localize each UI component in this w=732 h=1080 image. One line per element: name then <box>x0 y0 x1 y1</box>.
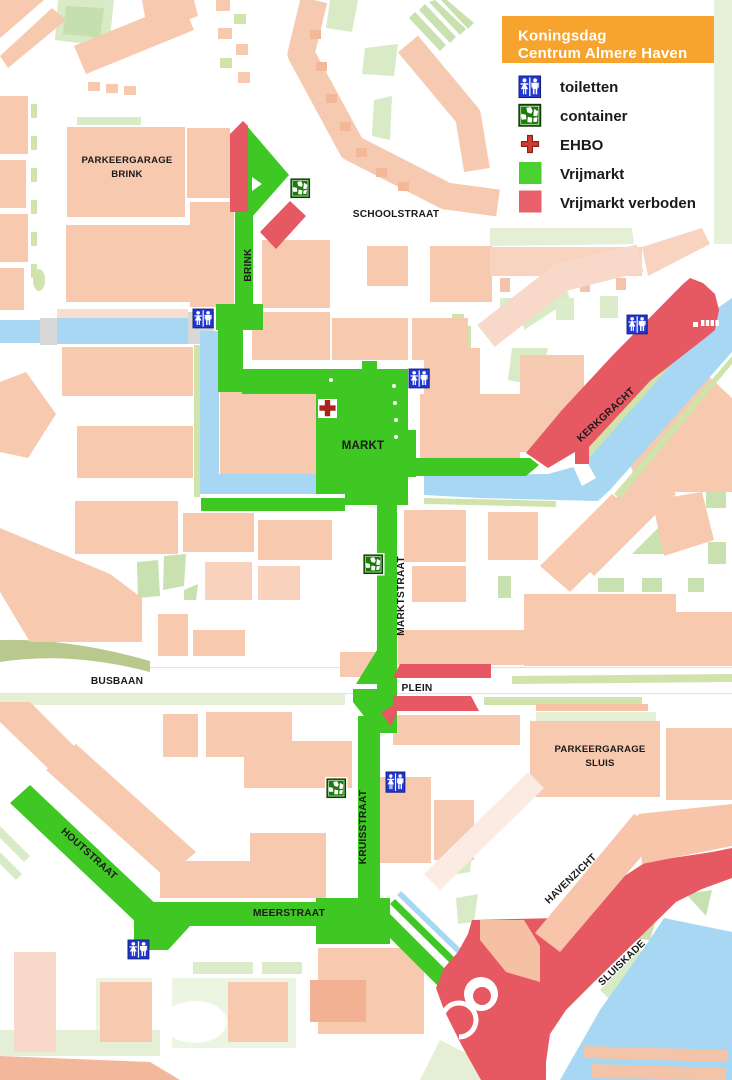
svg-text:KRUISSTRAAT: KRUISSTRAAT <box>358 789 369 864</box>
svg-text:EHBO: EHBO <box>560 137 604 154</box>
svg-text:BRINK: BRINK <box>243 248 254 282</box>
svg-text:BUSBAAN: BUSBAAN <box>91 676 143 687</box>
svg-text:Vrijmarkt verboden: Vrijmarkt verboden <box>560 195 696 212</box>
svg-text:MEERSTRAAT: MEERSTRAAT <box>253 908 326 919</box>
svg-text:PARKEERGARAGE: PARKEERGARAGE <box>555 744 646 755</box>
svg-text:toiletten: toiletten <box>560 79 618 96</box>
svg-text:PARKEERGARAGE: PARKEERGARAGE <box>82 155 173 166</box>
svg-text:MARKTSTRAAT: MARKTSTRAAT <box>396 556 407 636</box>
svg-text:SCHOOLSTRAAT: SCHOOLSTRAAT <box>353 209 440 220</box>
svg-text:PLEIN: PLEIN <box>401 683 432 694</box>
svg-text:SLUIS: SLUIS <box>585 758 615 769</box>
svg-text:Koningsdag: Koningsdag <box>518 28 607 45</box>
svg-text:Centrum Almere Haven: Centrum Almere Haven <box>518 45 687 62</box>
svg-text:BRINK: BRINK <box>111 169 142 180</box>
svg-text:MARKT: MARKT <box>342 440 385 452</box>
svg-text:container: container <box>560 108 628 125</box>
svg-text:Vrijmarkt: Vrijmarkt <box>560 166 624 183</box>
